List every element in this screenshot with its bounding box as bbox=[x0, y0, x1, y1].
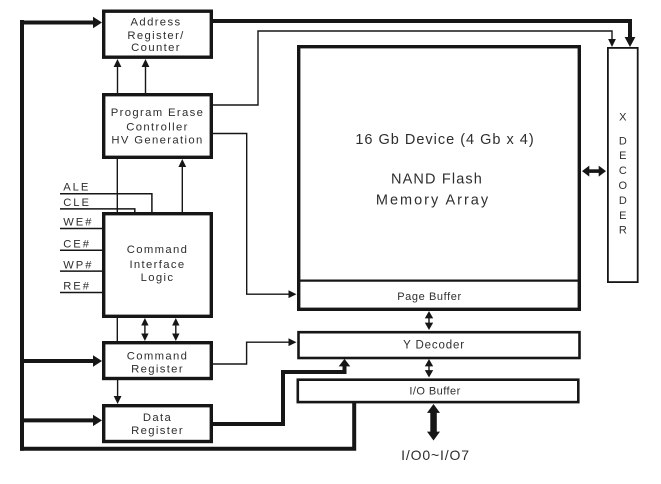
svg-text:16 Gb Device (4 Gb x 4): 16 Gb Device (4 Gb x 4) bbox=[355, 132, 534, 148]
svg-text:E: E bbox=[619, 210, 626, 222]
svg-text:CLE: CLE bbox=[63, 197, 91, 209]
svg-text:E: E bbox=[619, 150, 626, 162]
svg-text:Command: Command bbox=[127, 244, 189, 256]
svg-text:Address: Address bbox=[131, 17, 182, 29]
svg-text:Counter: Counter bbox=[131, 42, 181, 54]
svg-text:Interface: Interface bbox=[129, 259, 185, 271]
svg-text:D: D bbox=[619, 195, 627, 207]
svg-text:Y Decoder: Y Decoder bbox=[403, 339, 465, 351]
svg-text:WE#: WE# bbox=[63, 217, 93, 229]
svg-text:O: O bbox=[619, 180, 628, 192]
svg-text:Controller: Controller bbox=[126, 122, 188, 134]
svg-text:HV Generation: HV Generation bbox=[111, 135, 203, 147]
svg-text:C: C bbox=[619, 165, 627, 177]
svg-text:D: D bbox=[619, 135, 627, 147]
svg-text:Register: Register bbox=[131, 425, 184, 437]
svg-text:Register: Register bbox=[131, 363, 184, 375]
svg-text:I/O0~I/O7: I/O0~I/O7 bbox=[401, 447, 470, 463]
svg-text:CE#: CE# bbox=[63, 238, 91, 250]
svg-text:Command: Command bbox=[127, 350, 189, 362]
svg-text:Data: Data bbox=[143, 412, 172, 424]
svg-text:NAND Flash: NAND Flash bbox=[391, 172, 483, 188]
svg-text:Logic: Logic bbox=[141, 272, 175, 284]
svg-text:I/O Buffer: I/O Buffer bbox=[409, 386, 460, 398]
svg-text:Program Erase: Program Erase bbox=[111, 107, 205, 119]
svg-text:Register/: Register/ bbox=[127, 30, 184, 42]
svg-text:ALE: ALE bbox=[63, 182, 90, 194]
svg-text:Memory Array: Memory Array bbox=[376, 193, 490, 209]
svg-text:WP#: WP# bbox=[63, 259, 93, 271]
svg-text:R: R bbox=[619, 225, 627, 237]
svg-text:Page Buffer: Page Buffer bbox=[397, 291, 462, 303]
svg-text:RE#: RE# bbox=[63, 281, 91, 293]
svg-text:X: X bbox=[619, 112, 627, 124]
